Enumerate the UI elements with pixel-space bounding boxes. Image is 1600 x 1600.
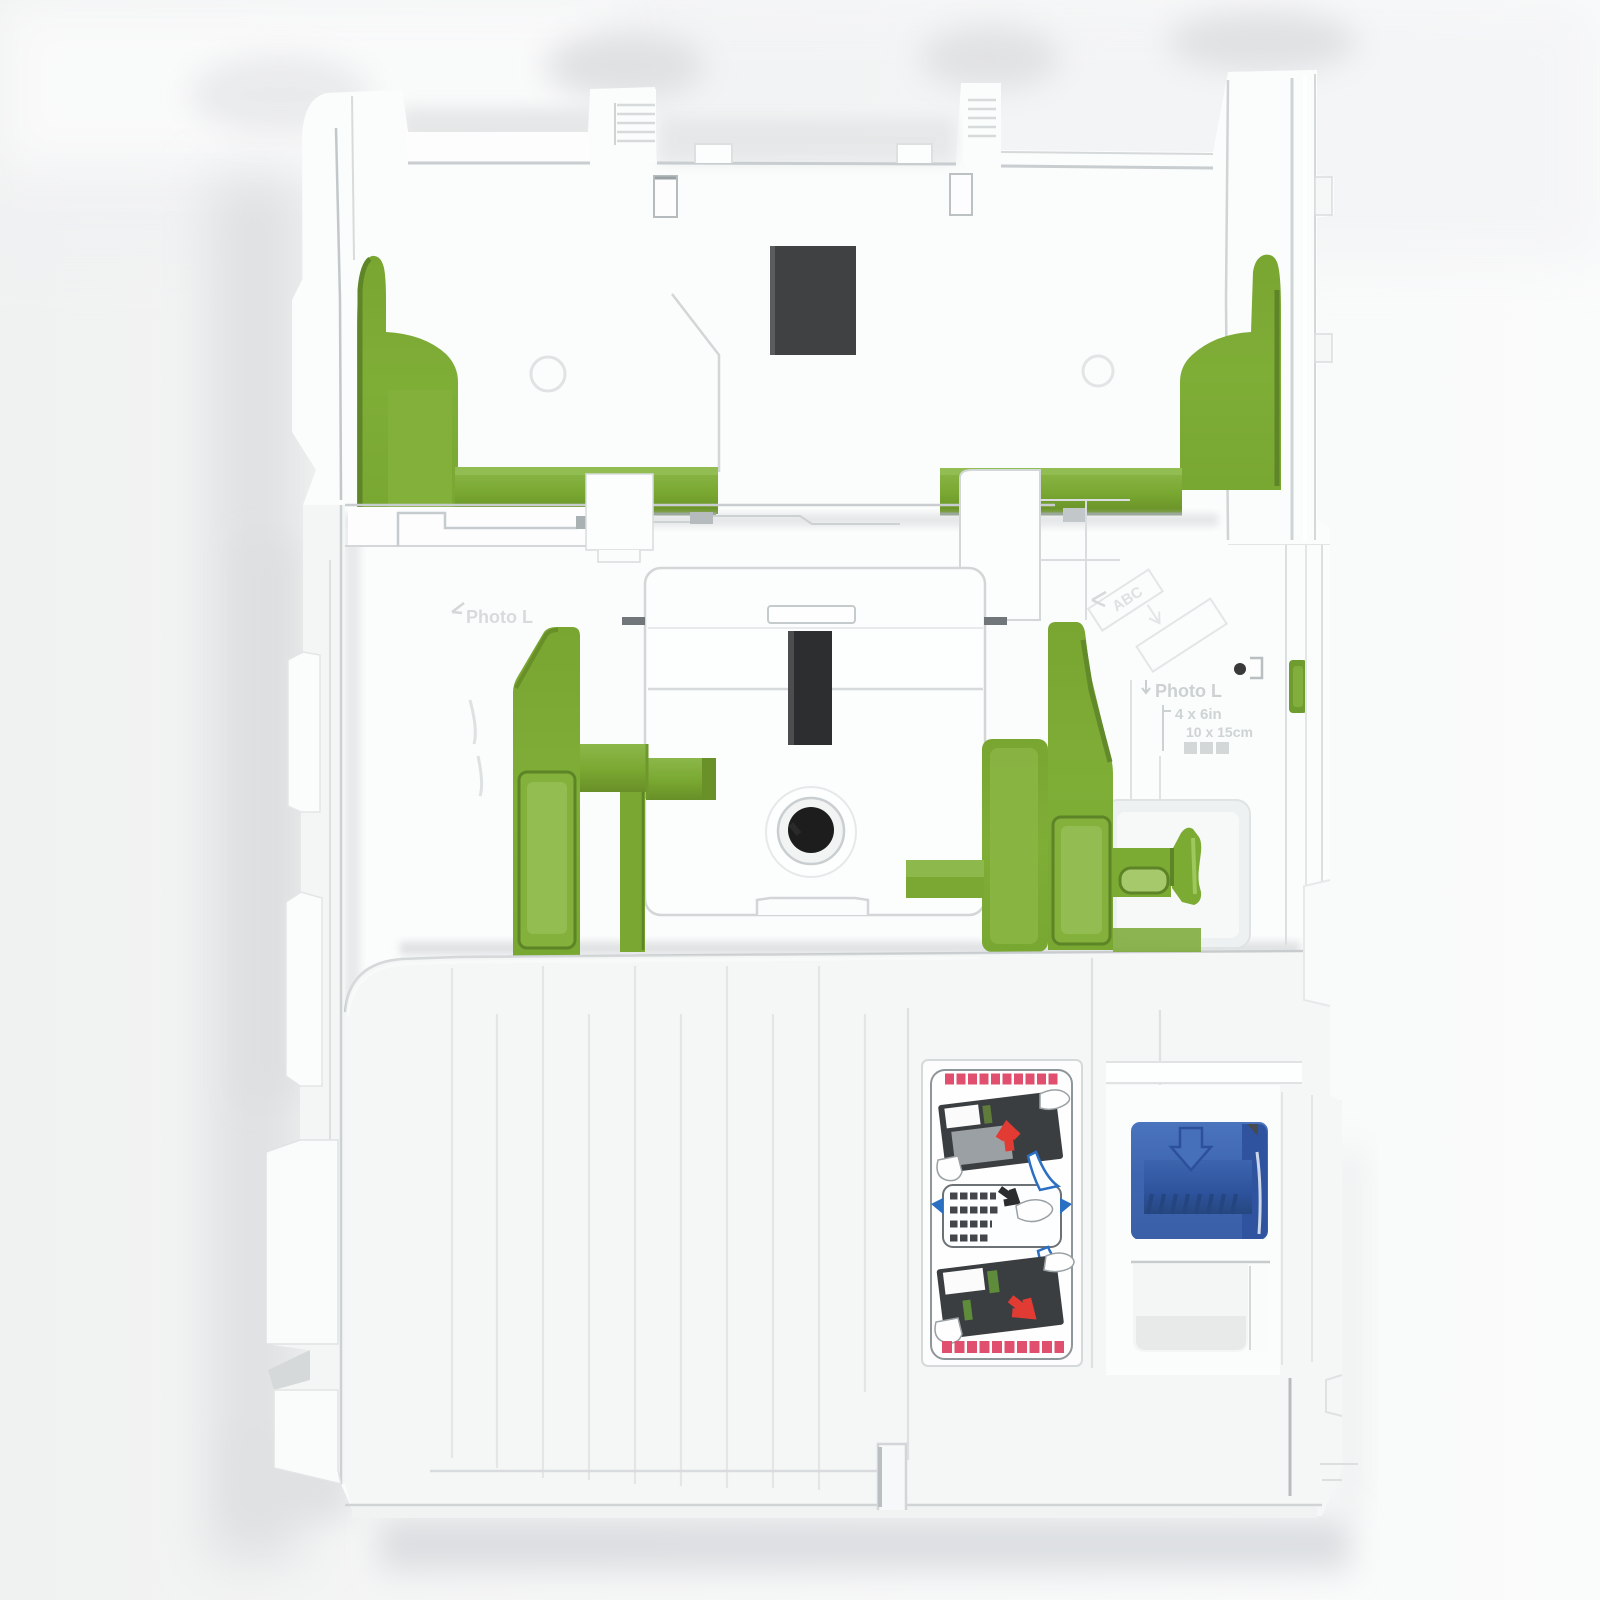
svg-text:10 x 15cm: 10 x 15cm — [1186, 724, 1253, 740]
svg-text:Photo L: Photo L — [466, 607, 533, 627]
svg-text:4 x 6in: 4 x 6in — [1175, 706, 1222, 723]
svg-text:Photo L: Photo L — [1155, 681, 1222, 701]
